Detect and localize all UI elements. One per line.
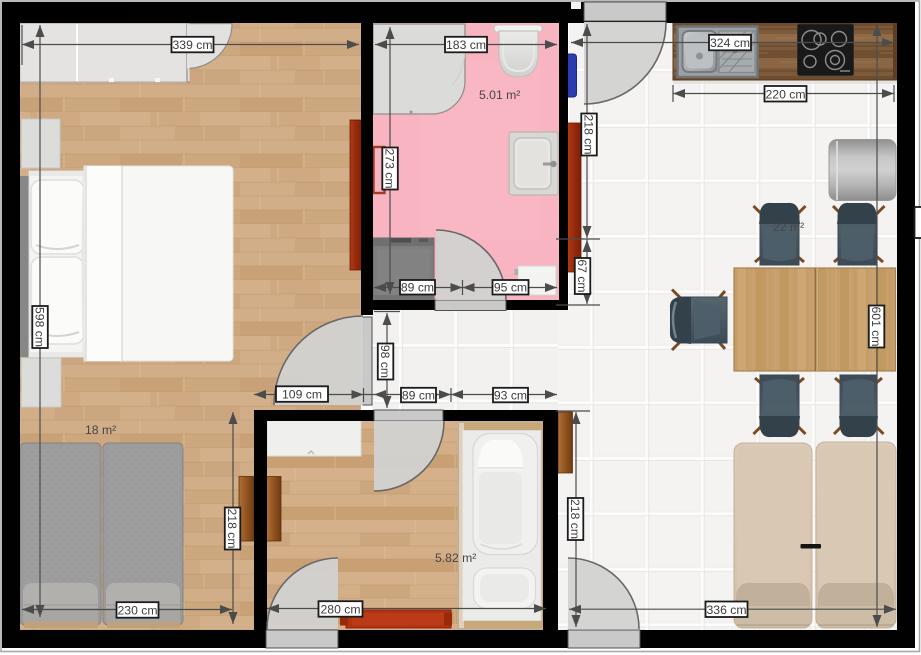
svg-text:109 cm: 109 cm (282, 388, 322, 402)
svg-text:93 cm: 93 cm (494, 389, 527, 403)
svg-text:280 cm: 280 cm (321, 603, 361, 617)
svg-text:183 cm: 183 cm (446, 38, 486, 52)
svg-text:339 cm: 339 cm (173, 38, 213, 52)
svg-text:5.82 m²: 5.82 m² (435, 551, 476, 565)
svg-text:601 cm: 601 cm (869, 307, 883, 347)
svg-text:67 cm: 67 cm (575, 259, 589, 292)
svg-text:95 cm: 95 cm (494, 281, 527, 295)
svg-text:5.01 m²: 5.01 m² (479, 88, 520, 102)
svg-text:230 cm: 230 cm (118, 604, 158, 618)
svg-text:336 cm: 336 cm (707, 603, 747, 617)
svg-text:273 cm: 273 cm (382, 149, 396, 189)
svg-text:324 cm: 324 cm (710, 36, 750, 50)
svg-text:598 cm: 598 cm (32, 307, 46, 347)
svg-text:22 m²: 22 m² (773, 220, 804, 234)
svg-text:218 cm: 218 cm (568, 499, 582, 539)
svg-text:89 cm: 89 cm (402, 389, 435, 403)
svg-text:220 cm: 220 cm (766, 87, 806, 101)
svg-text:218 cm: 218 cm (225, 509, 239, 549)
svg-text:98 cm: 98 cm (378, 345, 392, 378)
svg-text:89 cm: 89 cm (401, 281, 434, 295)
svg-text:218 cm: 218 cm (581, 115, 595, 155)
svg-text:18 m²: 18 m² (85, 423, 116, 437)
